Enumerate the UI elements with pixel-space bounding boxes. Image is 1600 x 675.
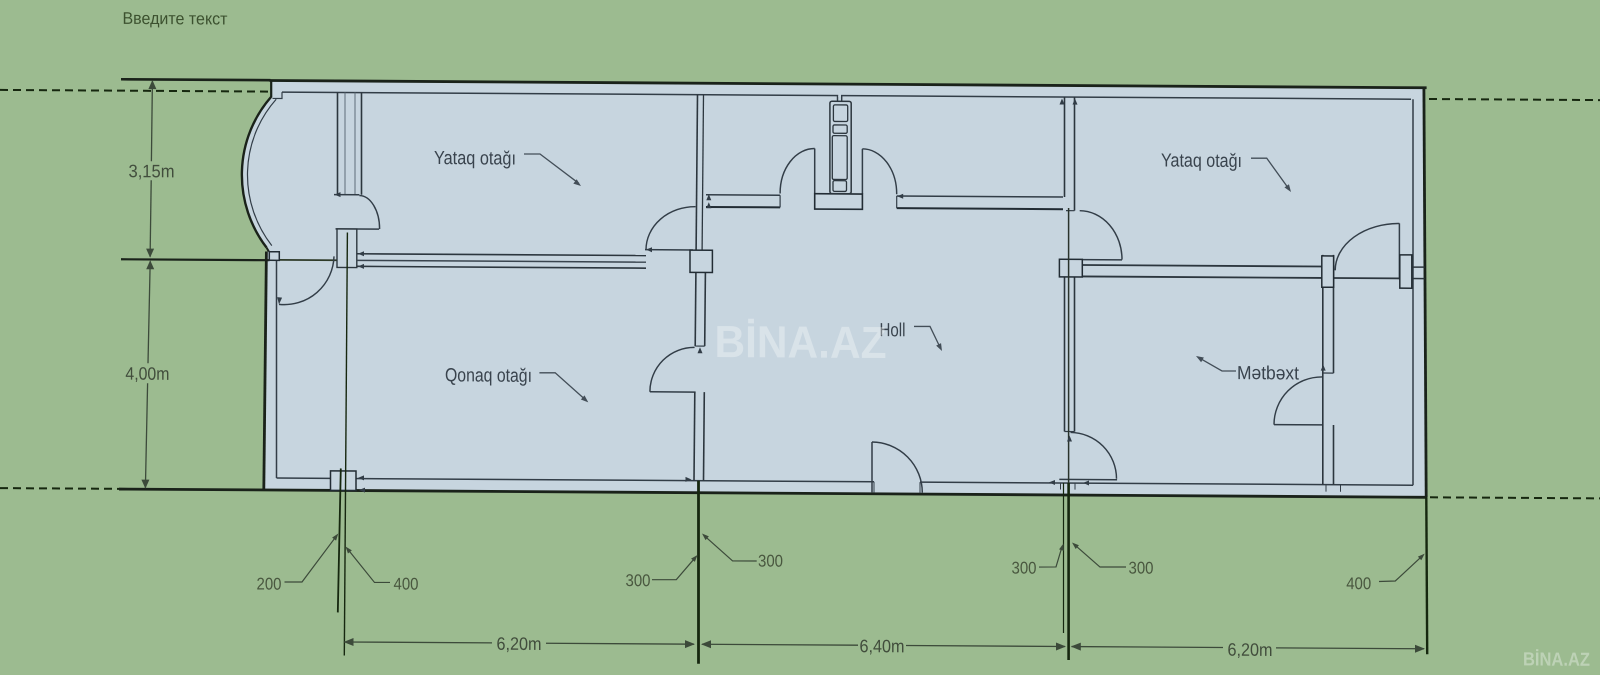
svg-text:Yataq otağı: Yataq otağı (434, 148, 516, 170)
svg-text:300: 300 (758, 551, 783, 570)
svg-text:BİNA.AZ: BİNA.AZ (1523, 649, 1590, 670)
svg-text:BİNA.AZ: BİNA.AZ (715, 316, 887, 368)
svg-text:400: 400 (394, 574, 419, 593)
svg-text:Mətbəxt: Mətbəxt (1237, 363, 1300, 384)
svg-text:200: 200 (257, 575, 282, 594)
svg-text:300: 300 (626, 571, 651, 590)
svg-text:400: 400 (1346, 574, 1371, 593)
svg-text:Введите текст: Введите текст (123, 9, 228, 29)
svg-text:6,20m: 6,20m (496, 634, 541, 654)
svg-text:Qonaq otağı: Qonaq otağı (445, 365, 532, 387)
svg-text:3,15m: 3,15m (129, 161, 175, 181)
svg-text:6,40m: 6,40m (860, 636, 905, 656)
svg-text:Yataq otağı: Yataq otağı (1161, 151, 1242, 173)
svg-text:4,00m: 4,00m (125, 364, 169, 384)
svg-text:300: 300 (1129, 559, 1154, 578)
svg-text:300: 300 (1012, 558, 1037, 577)
svg-text:6,20m: 6,20m (1228, 640, 1273, 660)
